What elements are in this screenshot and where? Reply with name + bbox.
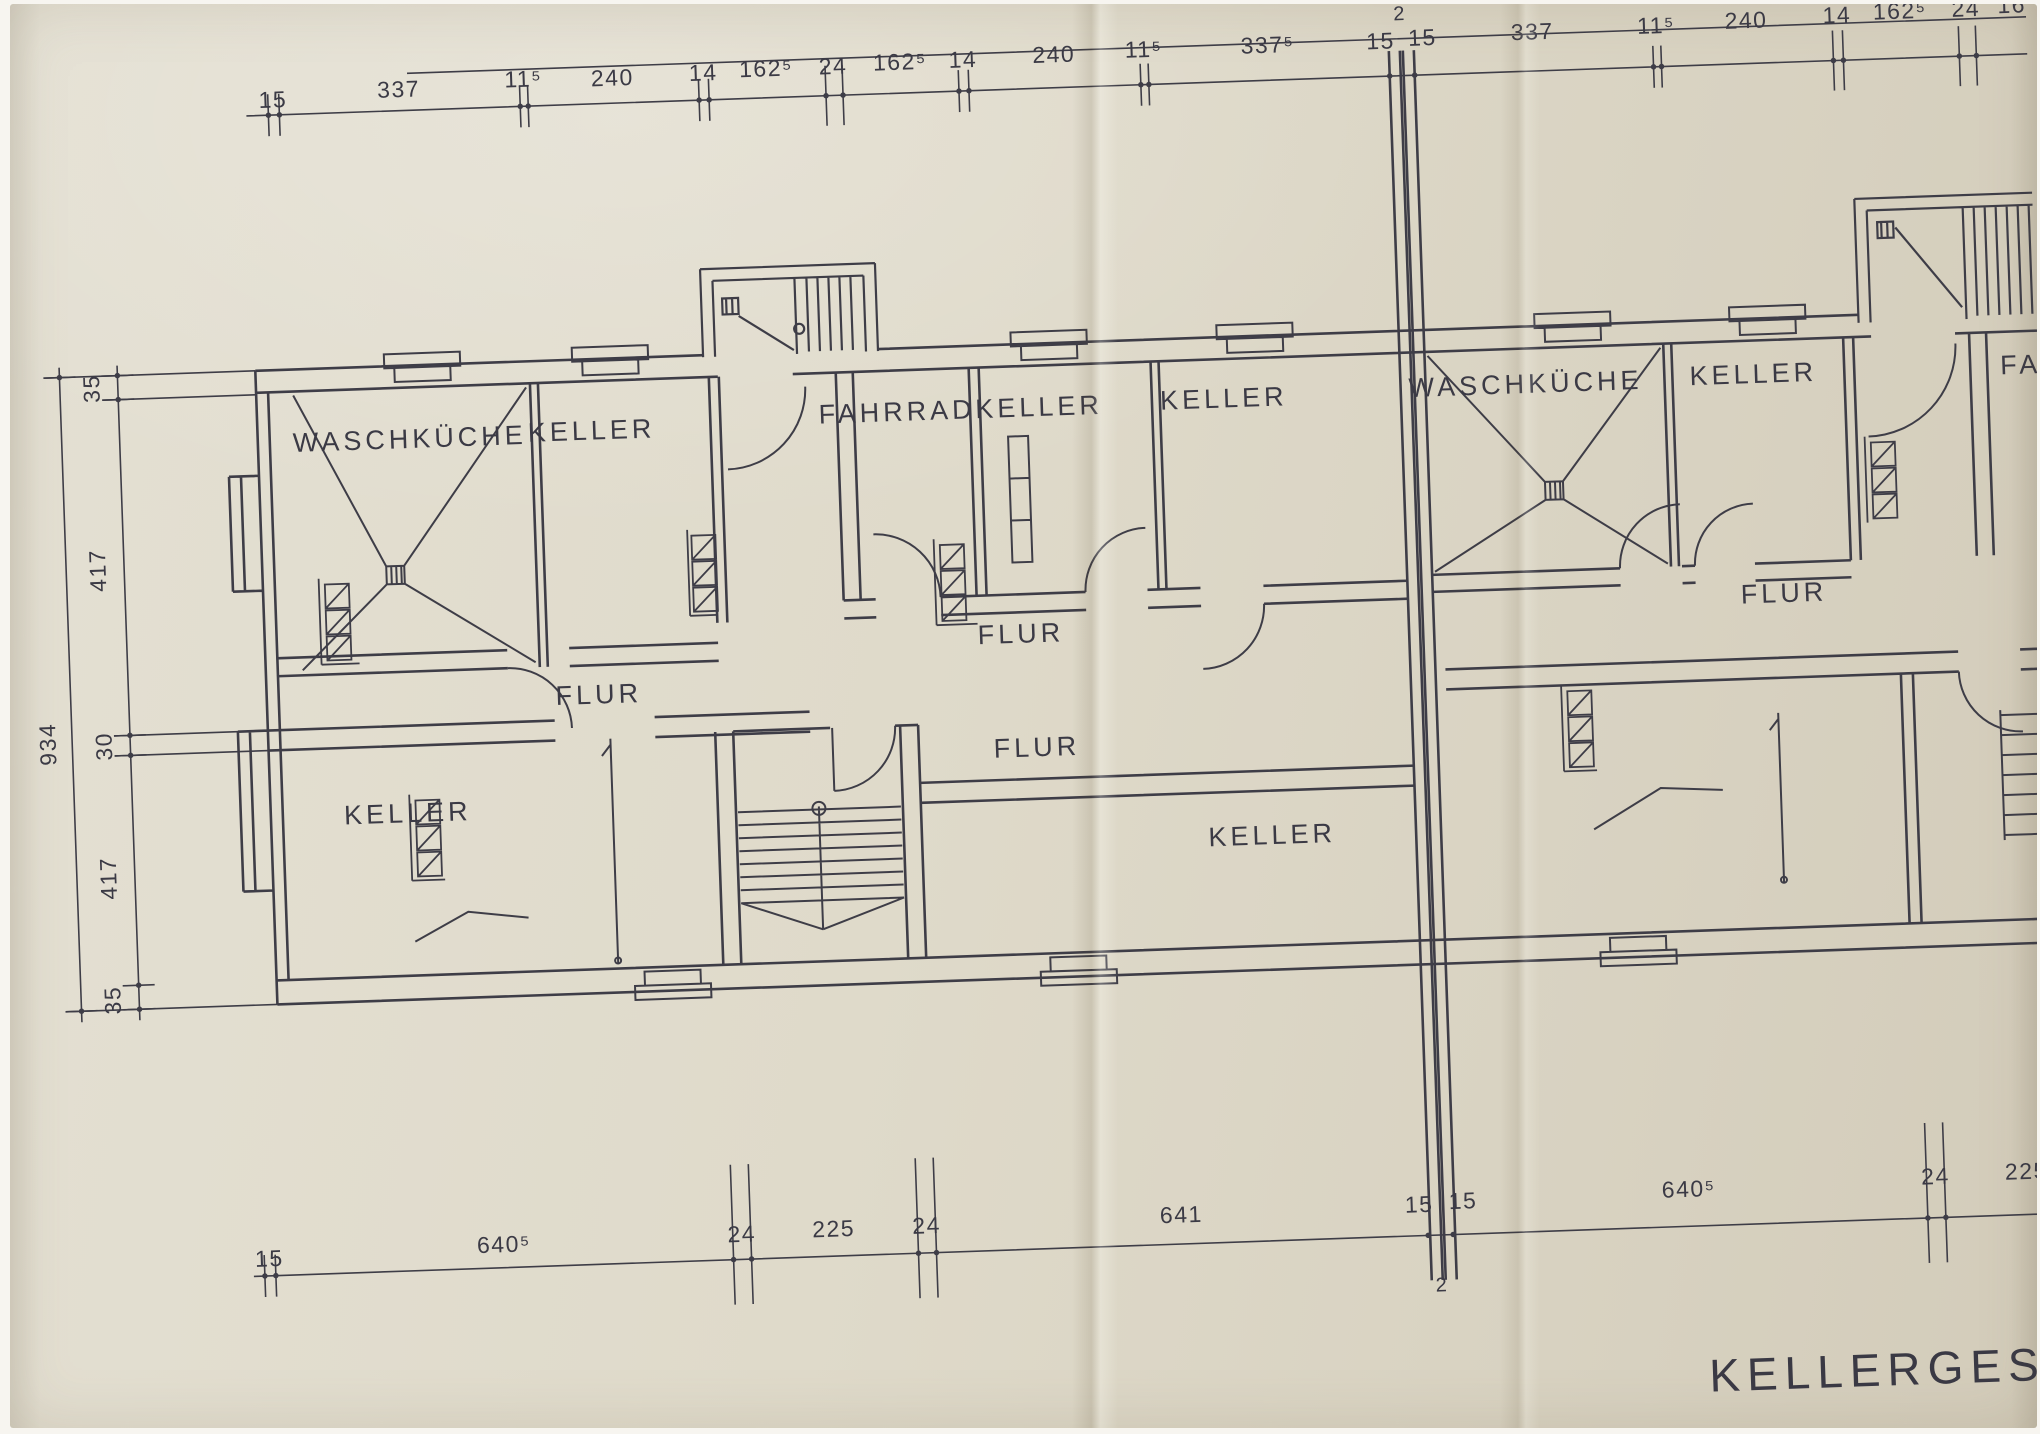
dim-top-14: 15	[1408, 24, 1438, 52]
dim-top-9: 240	[1032, 41, 1076, 69]
dim-bottom-2: 24	[727, 1220, 757, 1248]
dim-bottom-10: 24	[1921, 1163, 1951, 1191]
dim-top-20: 24	[1951, 4, 1981, 23]
dim-top-6: 24	[818, 52, 848, 80]
dim-bottom-3: 225	[812, 1215, 856, 1243]
room-label-keller-top-right: KELLER	[1160, 381, 1289, 416]
room-label-flur-left: FLUR	[555, 678, 643, 712]
dim-top-12: 15	[1366, 27, 1396, 55]
dim-top-2: 11⁵	[504, 65, 543, 93]
dim-top-10: 11⁵	[1124, 35, 1163, 63]
room-label-keller-top-mid: KELLER	[975, 390, 1104, 425]
dimension-dots	[51, 56, 2017, 1283]
room-label-flur-mid-lower: FLUR	[993, 731, 1081, 765]
dim-bottom-1: 640⁵	[477, 1230, 532, 1259]
room-label-flur-mid-upper: FLUR	[977, 617, 1065, 651]
floorplan-drawing	[10, 4, 2037, 1428]
dim-top-19: 162⁵	[1872, 4, 1927, 26]
dimension-lines	[33, 17, 2037, 1328]
dim-left-2: 30	[90, 732, 118, 762]
dim-left-3: 417	[95, 856, 123, 900]
stair-unit2-lower	[2000, 708, 2037, 840]
room-label-keller-bottom-right: KELLER	[1208, 818, 1337, 853]
dim-bottom-6: 15	[1404, 1191, 1434, 1219]
room-label-keller-unit2: KELLER	[1689, 357, 1818, 392]
dim-top-1: 337	[377, 75, 421, 103]
dim-bottom-9: 640⁵	[1661, 1175, 1716, 1204]
room-label-keller-top-left: KELLER	[527, 413, 656, 448]
dim-top-8: 14	[948, 46, 978, 74]
dim-bottom-4: 24	[912, 1212, 942, 1240]
dim-left-4: 35	[99, 985, 127, 1015]
door-leaves	[601, 698, 1788, 964]
dim-bottom-8: 15	[1448, 1187, 1478, 1215]
dim-top-18: 14	[1822, 4, 1852, 29]
dim-top-17: 240	[1724, 6, 1768, 34]
room-label-keller-bottom-left: KELLER	[344, 796, 473, 831]
hook-lines	[411, 786, 1726, 942]
dim-top-5: 162⁵	[739, 54, 794, 83]
dim-top-15: 337	[1510, 18, 1554, 46]
dim-top-0: 15	[258, 86, 288, 114]
dim-top-16: 11⁵	[1637, 12, 1676, 40]
scanned-floorplan-photo: WASCHKÜCHE KELLER FAHRRAD KELLER KELLER …	[0, 0, 2040, 1434]
party-wall	[1389, 50, 1457, 1280]
dim-top-11: 337⁵	[1240, 31, 1295, 60]
dim-top-3: 240	[590, 64, 634, 92]
dim-bottom-7-gap: 2	[1435, 1274, 1448, 1297]
central-staircase	[735, 726, 905, 933]
dim-left-total: 934	[34, 722, 62, 766]
dim-top-13-gap: 2	[1393, 4, 1406, 26]
dim-left-1: 417	[84, 549, 112, 593]
dim-top-4: 14	[688, 59, 718, 87]
walls-horizontal	[255, 309, 2037, 1005]
room-label-fahrrad-unit2-cut: FA	[2000, 349, 2037, 381]
floorplan-rotated-wrapper: WASCHKÜCHE KELLER FAHRRAD KELLER KELLER …	[10, 4, 2037, 1428]
dim-bottom-5: 641	[1159, 1201, 1203, 1229]
dim-bottom-11: 225	[2004, 1157, 2037, 1185]
chimney	[1008, 436, 1032, 563]
room-label-fahrrad: FAHRRAD	[818, 394, 976, 430]
dim-top-21-cut: 16	[1997, 4, 2027, 19]
entry-stair-unit2	[1854, 193, 2036, 323]
dim-top-7: 162⁵	[873, 48, 928, 77]
window-symbols	[384, 305, 1828, 1008]
room-label-flur-unit2: FLUR	[1740, 577, 1828, 611]
blueprint-paper: WASCHKÜCHE KELLER FAHRRAD KELLER KELLER …	[10, 4, 2037, 1428]
dim-bottom-0: 15	[255, 1245, 285, 1273]
dim-left-0: 35	[78, 374, 106, 404]
entry-stair-unit1	[700, 263, 878, 357]
